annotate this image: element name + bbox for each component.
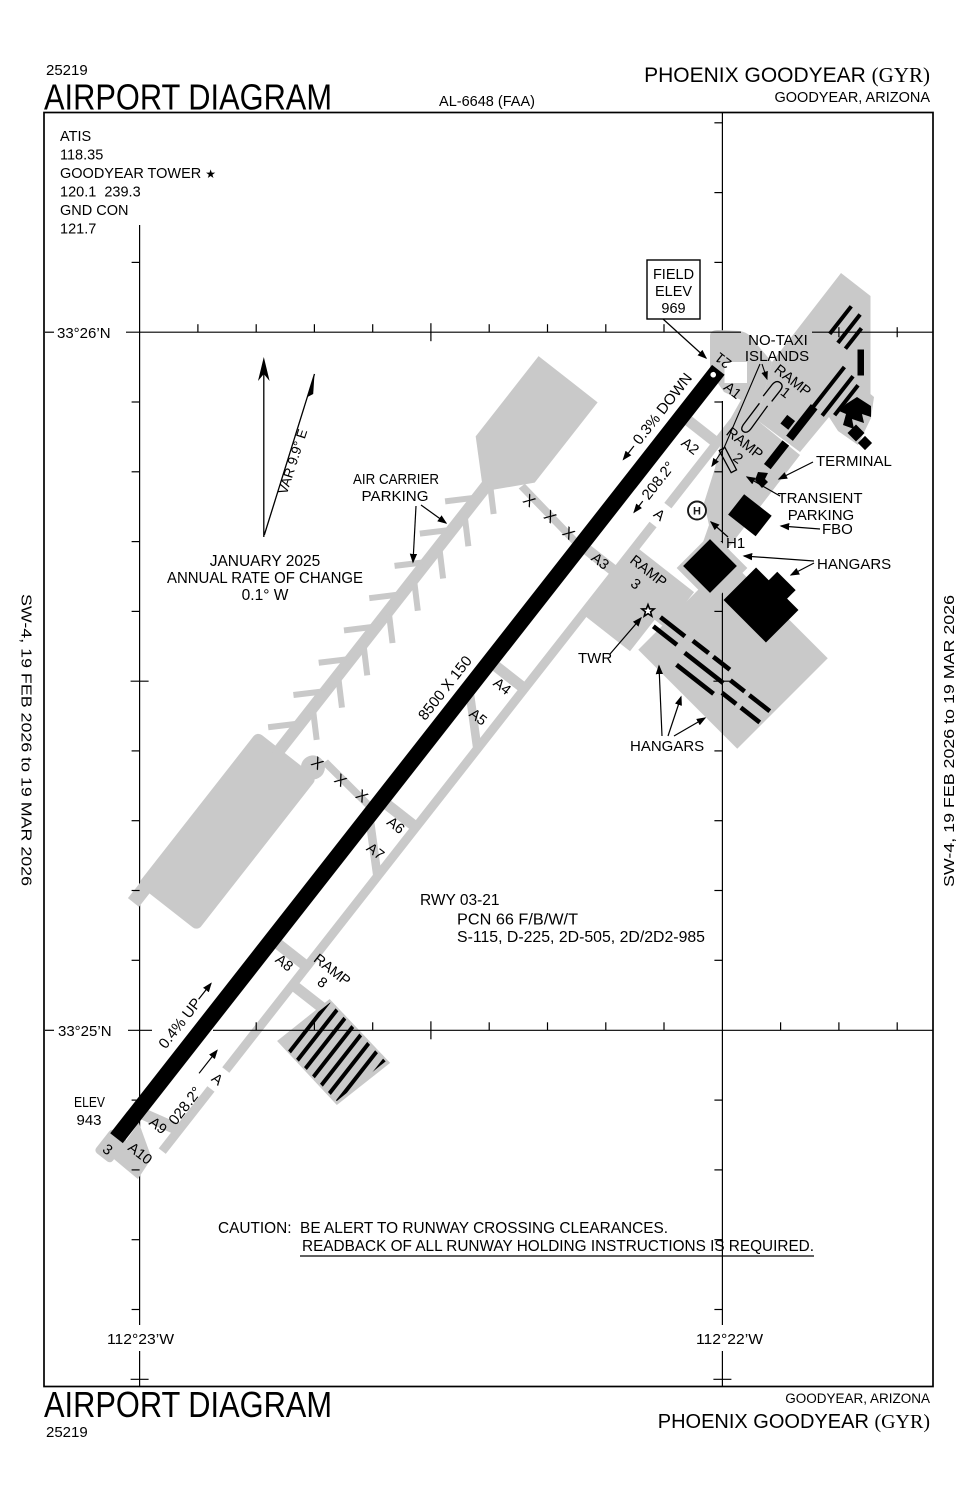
svg-text:ISLANDS: ISLANDS bbox=[745, 348, 809, 365]
svg-text:GOODYEAR, ARIZONA: GOODYEAR, ARIZONA bbox=[775, 90, 931, 106]
svg-text:ELEV: ELEV bbox=[655, 284, 692, 300]
svg-text:AIRPORT DIAGRAM: AIRPORT DIAGRAM bbox=[44, 77, 332, 118]
svg-text:33°26’N: 33°26’N bbox=[57, 325, 111, 342]
svg-text:JANUARY 2025: JANUARY 2025 bbox=[210, 553, 321, 570]
svg-text:HANGARS: HANGARS bbox=[630, 738, 704, 755]
svg-text:NO-TAXI: NO-TAXI bbox=[748, 332, 808, 349]
svg-text:FBO: FBO bbox=[822, 521, 853, 538]
svg-text:AL-6648 (FAA): AL-6648 (FAA) bbox=[439, 94, 535, 110]
svg-text:SW-4, 19 FEB 2026 to 19 MAR: SW-4, 19 FEB 2026 to 19 MAR 2026 bbox=[18, 594, 34, 886]
svg-text:969: 969 bbox=[661, 301, 685, 317]
svg-text:943: 943 bbox=[77, 1112, 102, 1129]
svg-text:ELEV: ELEV bbox=[74, 1094, 105, 1111]
svg-text:H1: H1 bbox=[726, 535, 745, 552]
svg-text:GND CON: GND CON bbox=[60, 203, 128, 219]
svg-text:GOODYEAR, ARIZONA: GOODYEAR, ARIZONA bbox=[785, 1391, 930, 1406]
svg-text:PHOENIX GOODYEAR (GYR): PHOENIX GOODYEAR (GYR) bbox=[644, 63, 930, 87]
svg-text:AIR CARRIER: AIR CARRIER bbox=[353, 471, 439, 488]
svg-text:ATIS: ATIS bbox=[60, 129, 91, 145]
svg-text:ANNUAL RATE OF CHANGE: ANNUAL RATE OF CHANGE bbox=[167, 570, 363, 587]
svg-text:120.1 239.3: 120.1 239.3 bbox=[60, 185, 141, 201]
svg-text:112°22’W: 112°22’W bbox=[696, 1331, 764, 1348]
svg-text:112°23’W: 112°23’W bbox=[107, 1331, 175, 1348]
svg-text:TRANSIENT: TRANSIENT bbox=[777, 490, 862, 507]
svg-text:HANGARS: HANGARS bbox=[817, 556, 891, 573]
svg-text:READBACK OF ALL RUNWAY HOLDING: READBACK OF ALL RUNWAY HOLDING INSTRUCTI… bbox=[302, 1238, 814, 1255]
svg-text:SW-4, 19 FEB 2026 to 19 MAR: SW-4, 19 FEB 2026 to 19 MAR 2026 bbox=[942, 595, 958, 887]
svg-text:H: H bbox=[693, 505, 701, 517]
svg-text:121.7: 121.7 bbox=[60, 222, 96, 238]
svg-text:PHOENIX GOODYEAR (GYR): PHOENIX GOODYEAR (GYR) bbox=[658, 1411, 930, 1433]
svg-text:S-115, D-225, 2D-505, 2D/2D2-9: S-115, D-225, 2D-505, 2D/2D2-985 bbox=[457, 929, 705, 946]
svg-text:TERMINAL: TERMINAL bbox=[816, 453, 892, 470]
svg-text:PARKING: PARKING bbox=[362, 488, 429, 505]
svg-text:FIELD: FIELD bbox=[653, 267, 694, 283]
svg-text:25219: 25219 bbox=[46, 1424, 88, 1441]
svg-text:0.1° W: 0.1° W bbox=[242, 587, 289, 604]
svg-text:PCN 66 F/B/W/T: PCN 66 F/B/W/T bbox=[457, 912, 579, 929]
svg-text:118.35: 118.35 bbox=[60, 148, 103, 164]
svg-text:TWR: TWR bbox=[578, 650, 612, 667]
svg-text:CAUTION: BE ALERT TO RUNWAY C: CAUTION: BE ALERT TO RUNWAY CROSSING CLE… bbox=[218, 1220, 668, 1237]
svg-text:AIRPORT DIAGRAM: AIRPORT DIAGRAM bbox=[44, 1384, 332, 1425]
svg-text:GOODYEAR TOWER ★: GOODYEAR TOWER ★ bbox=[60, 166, 216, 182]
svg-text:RWY 03-21: RWY 03-21 bbox=[420, 892, 500, 909]
svg-text:33°25’N: 33°25’N bbox=[58, 1023, 112, 1040]
